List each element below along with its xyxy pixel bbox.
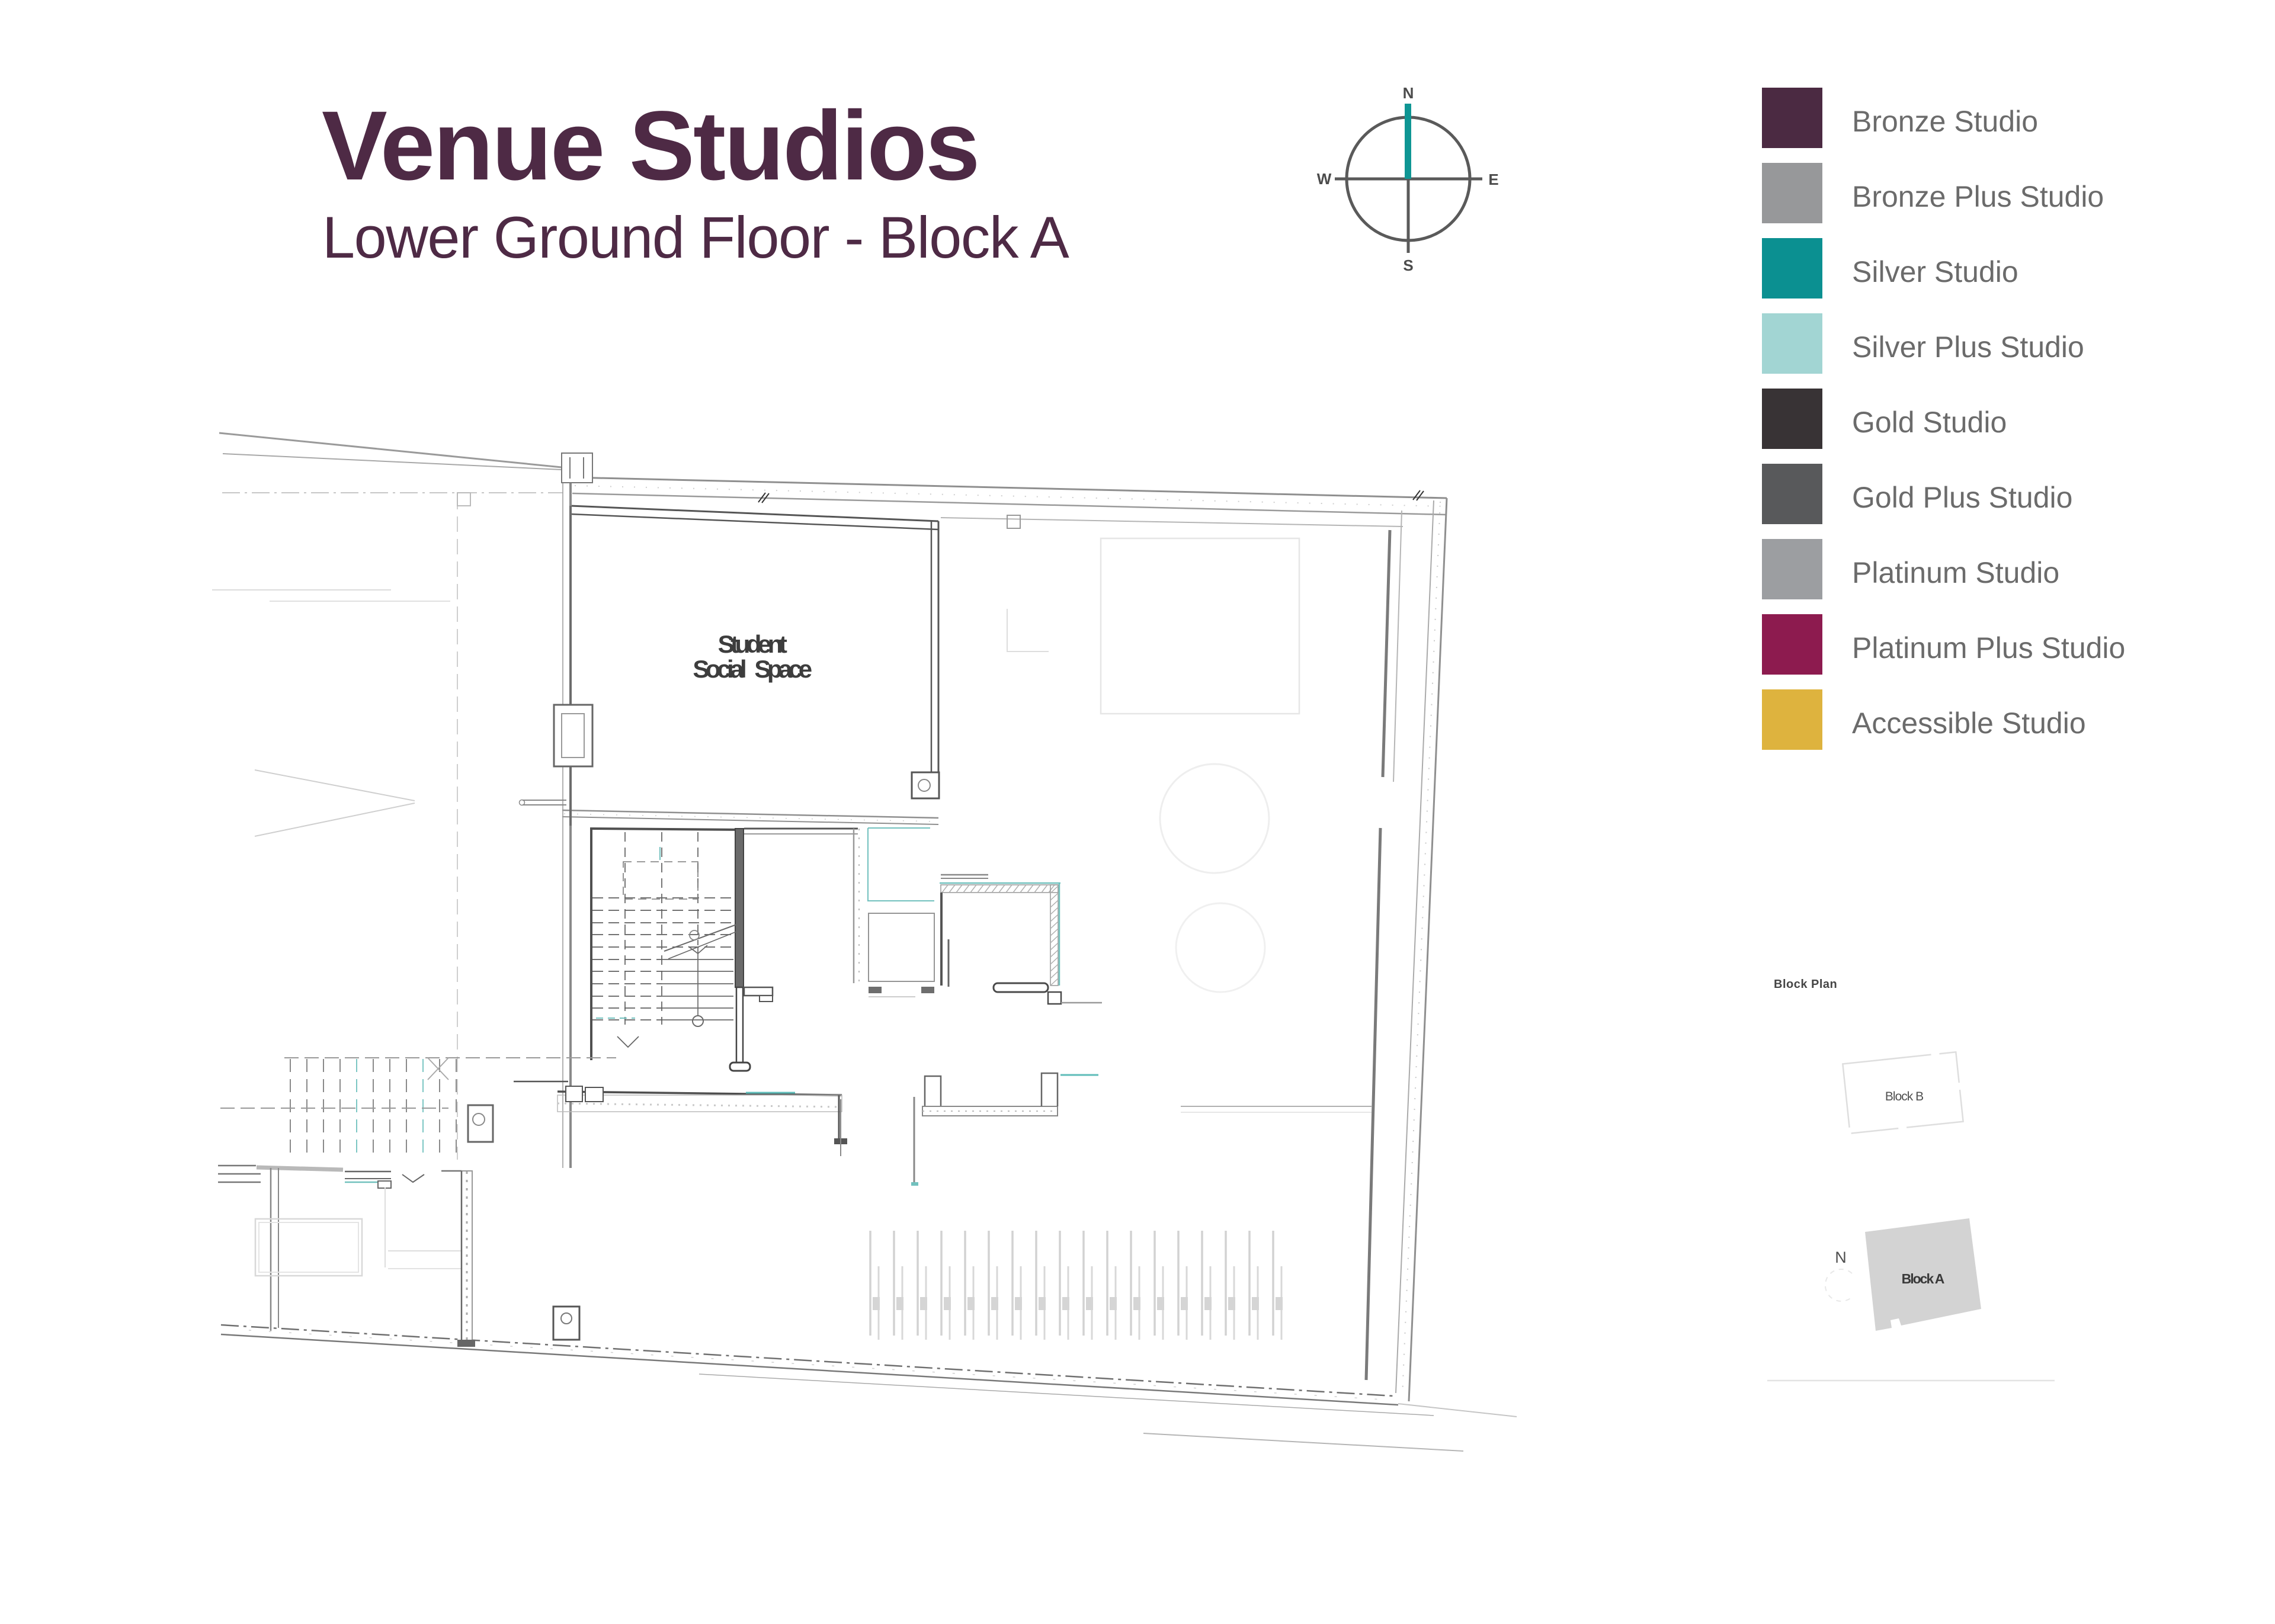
svg-text:N: N xyxy=(1403,84,1414,102)
svg-text:Block B: Block B xyxy=(1885,1090,1923,1103)
svg-text:Block Plan: Block Plan xyxy=(1774,978,1837,991)
svg-text:S: S xyxy=(1403,256,1413,274)
svg-text:Block A: Block A xyxy=(1902,1271,1944,1286)
svg-text:W: W xyxy=(1317,170,1332,188)
svg-text:E: E xyxy=(1488,171,1498,188)
svg-text:N: N xyxy=(1835,1249,1847,1266)
